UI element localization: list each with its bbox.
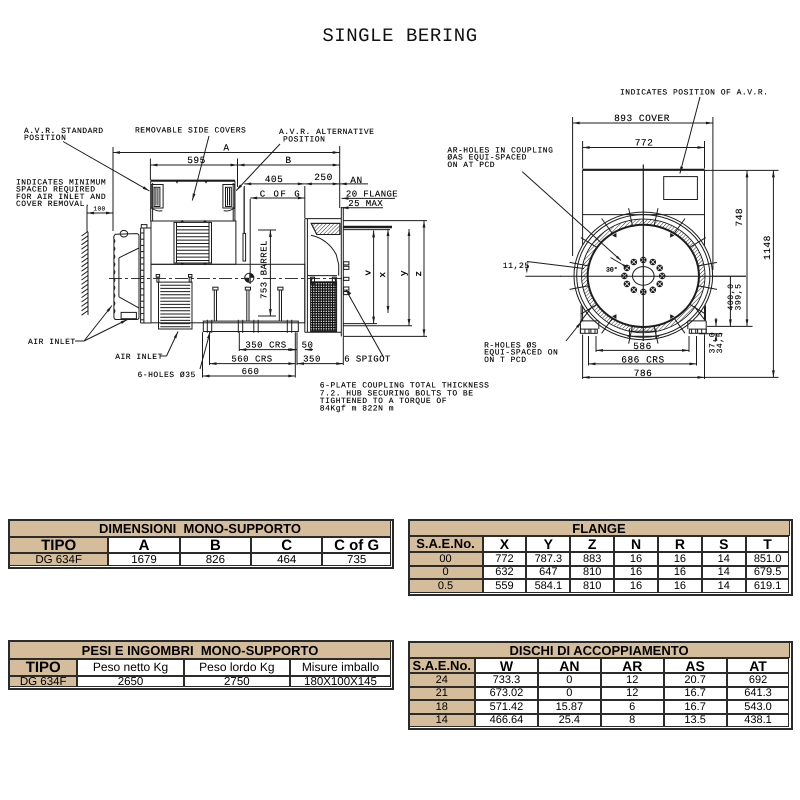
- svg-text:350 CRS: 350 CRS: [245, 341, 286, 351]
- svg-text:A: A: [223, 143, 229, 154]
- svg-text:AIR INLET: AIR INLET: [28, 338, 76, 347]
- svg-text:AIR INLET: AIR INLET: [115, 353, 163, 362]
- svg-text:748: 748: [734, 208, 745, 227]
- svg-text:ON AT PCD: ON AT PCD: [447, 161, 495, 170]
- svg-text:y: y: [399, 270, 409, 276]
- svg-text:B: B: [285, 155, 291, 166]
- svg-text:POSITION: POSITION: [283, 135, 325, 144]
- svg-text:586: 586: [633, 341, 652, 352]
- svg-text:C OF G: C OF G: [260, 190, 301, 200]
- svg-text:350: 350: [303, 355, 321, 365]
- svg-text:660: 660: [242, 367, 260, 377]
- svg-text:v: v: [364, 270, 374, 276]
- svg-text:ON T PCD: ON T PCD: [484, 356, 526, 365]
- svg-text:POSITION: POSITION: [24, 134, 66, 143]
- svg-text:405: 405: [265, 174, 284, 185]
- svg-text:1148: 1148: [762, 235, 773, 260]
- svg-text:84Kgf m 822N m: 84Kgf m 822N m: [320, 405, 394, 414]
- svg-text:100: 100: [93, 206, 105, 213]
- svg-text:772: 772: [635, 138, 654, 149]
- svg-text:34,5: 34,5: [716, 332, 725, 354]
- svg-text:399,5: 399,5: [735, 283, 744, 310]
- svg-text:250: 250: [314, 172, 333, 183]
- svg-text:11,25: 11,25: [503, 262, 530, 271]
- svg-text:REMOVABLE SIDE COVERS: REMOVABLE SIDE COVERS: [135, 127, 246, 136]
- svg-text:686 CRS: 686 CRS: [621, 354, 664, 365]
- svg-text:INDICATES POSITION OF A.V.R.: INDICATES POSITION OF A.V.R.: [620, 89, 768, 98]
- svg-text:x: x: [378, 272, 388, 278]
- svg-text:6-HOLES Ø35: 6-HOLES Ø35: [138, 371, 196, 380]
- svg-text:560 CRS: 560 CRS: [231, 355, 272, 365]
- svg-text:893 COVER: 893 COVER: [614, 113, 670, 124]
- svg-text:z: z: [414, 271, 424, 277]
- svg-text:6 SPIGOT: 6 SPIGOT: [344, 355, 391, 365]
- svg-text:COVER REMOVAL.: COVER REMOVAL.: [16, 200, 90, 209]
- svg-text:753 BARREL: 753 BARREL: [260, 240, 270, 299]
- svg-text:786: 786: [634, 368, 653, 379]
- svg-text:30°: 30°: [606, 267, 618, 274]
